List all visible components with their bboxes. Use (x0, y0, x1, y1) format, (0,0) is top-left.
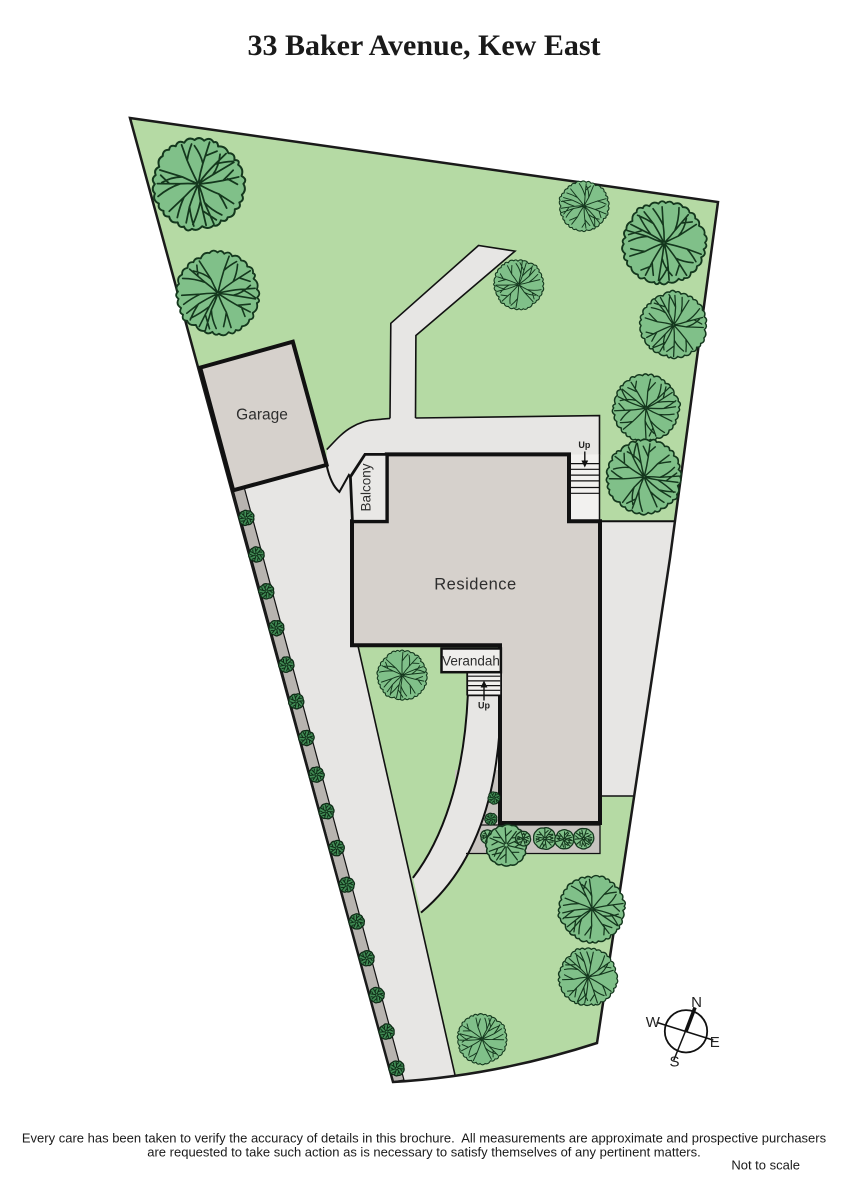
svg-text:Balcony: Balcony (359, 463, 374, 511)
svg-text:Every care has been taken to v: Every care has been taken to verify the … (22, 1131, 827, 1146)
svg-text:S: S (669, 1054, 679, 1071)
svg-text:E: E (710, 1034, 720, 1051)
svg-text:Garage: Garage (236, 407, 288, 424)
svg-text:W: W (646, 1014, 661, 1031)
svg-text:are requested to take such act: are requested to take such action as is … (147, 1145, 701, 1160)
svg-text:33 Baker Avenue, Kew East: 33 Baker Avenue, Kew East (247, 29, 600, 62)
svg-text:Up: Up (478, 701, 490, 711)
svg-text:N: N (691, 994, 702, 1011)
svg-text:Residence: Residence (434, 576, 516, 594)
svg-text:Not to scale: Not to scale (731, 1158, 800, 1173)
svg-text:Up: Up (578, 440, 590, 450)
svg-text:Verandah: Verandah (442, 654, 500, 669)
